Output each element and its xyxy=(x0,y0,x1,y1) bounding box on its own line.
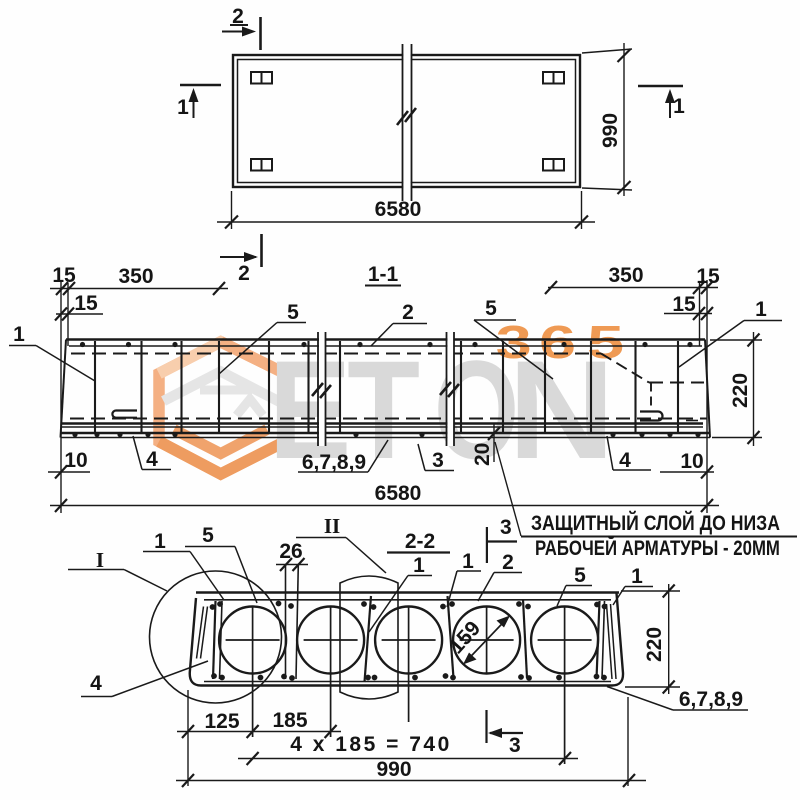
svg-text:3: 3 xyxy=(432,449,444,472)
svg-text:1: 1 xyxy=(413,554,425,577)
svg-text:1-1: 1-1 xyxy=(368,263,399,286)
svg-text:II: II xyxy=(324,514,340,538)
svg-text:2-2: 2-2 xyxy=(405,530,435,553)
svg-text:990: 990 xyxy=(599,113,622,148)
svg-text:6580: 6580 xyxy=(375,482,422,505)
svg-text:5: 5 xyxy=(587,317,624,368)
svg-text:2: 2 xyxy=(402,301,414,324)
svg-text:6,7,8,9: 6,7,8,9 xyxy=(679,688,743,711)
svg-text:10: 10 xyxy=(64,449,87,472)
svg-text:3: 3 xyxy=(500,516,512,539)
svg-text:1: 1 xyxy=(13,323,25,346)
svg-text:1: 1 xyxy=(755,298,767,321)
svg-text:4: 4 xyxy=(619,449,631,472)
svg-text:ЗАЩИТНЫЙ СЛОЙ ДО НИЗА: ЗАЩИТНЫЙ СЛОЙ ДО НИЗА xyxy=(531,509,780,535)
svg-text:3: 3 xyxy=(509,734,521,757)
svg-text:3: 3 xyxy=(496,316,532,368)
svg-text:20: 20 xyxy=(471,443,494,466)
svg-text:2: 2 xyxy=(238,262,250,285)
svg-text:185: 185 xyxy=(272,709,307,732)
svg-text:I: I xyxy=(96,548,104,572)
svg-text:5: 5 xyxy=(202,524,214,547)
svg-text:350: 350 xyxy=(118,265,153,288)
svg-text:4: 4 xyxy=(146,448,158,471)
svg-text:6580: 6580 xyxy=(375,198,422,221)
svg-text:6,7,8,9: 6,7,8,9 xyxy=(302,451,366,474)
svg-text:1: 1 xyxy=(154,530,166,553)
svg-text:125: 125 xyxy=(204,710,239,733)
svg-text:5: 5 xyxy=(574,564,586,587)
svg-text:1: 1 xyxy=(631,565,643,588)
svg-text:2: 2 xyxy=(232,5,244,28)
svg-text:350: 350 xyxy=(608,264,643,287)
svg-text:РАБОЧЕЙ АРМАТУРЫ - 20ММ: РАБОЧЕЙ АРМАТУРЫ - 20ММ xyxy=(535,536,780,560)
svg-text:4: 4 xyxy=(90,672,102,695)
svg-text:1: 1 xyxy=(177,96,189,119)
svg-text:1: 1 xyxy=(673,95,685,118)
svg-text:10: 10 xyxy=(680,450,703,473)
svg-text:26: 26 xyxy=(279,540,302,563)
svg-text:5: 5 xyxy=(287,301,299,324)
svg-text:15: 15 xyxy=(74,292,98,315)
svg-text:990: 990 xyxy=(376,758,411,781)
svg-text:15: 15 xyxy=(52,264,76,287)
svg-text:220: 220 xyxy=(643,627,666,662)
svg-text:15: 15 xyxy=(696,265,720,288)
svg-text:1: 1 xyxy=(462,550,474,573)
svg-text:4 x 185 = 740: 4 x 185 = 740 xyxy=(290,733,452,756)
svg-text:2: 2 xyxy=(502,551,514,574)
svg-text:15: 15 xyxy=(672,293,696,316)
svg-text:5: 5 xyxy=(485,297,497,320)
svg-text:220: 220 xyxy=(729,373,752,408)
